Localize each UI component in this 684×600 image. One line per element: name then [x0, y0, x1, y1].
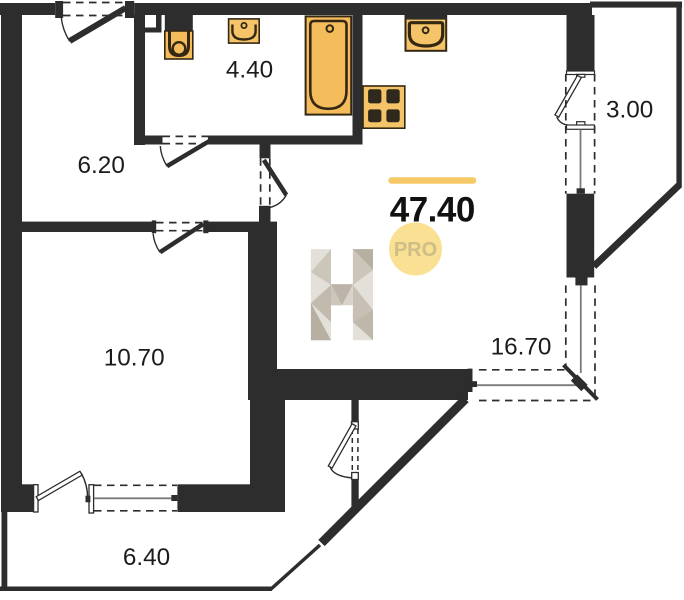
svg-text:6.20: 6.20	[78, 152, 125, 179]
svg-text:6.40: 6.40	[123, 544, 170, 571]
svg-text:PRO: PRO	[394, 239, 437, 261]
svg-text:4.40: 4.40	[226, 57, 273, 84]
svg-text:10.70: 10.70	[104, 344, 165, 371]
svg-text:47.40: 47.40	[390, 191, 475, 230]
svg-text:3.00: 3.00	[606, 97, 653, 124]
svg-text:16.70: 16.70	[491, 334, 552, 361]
